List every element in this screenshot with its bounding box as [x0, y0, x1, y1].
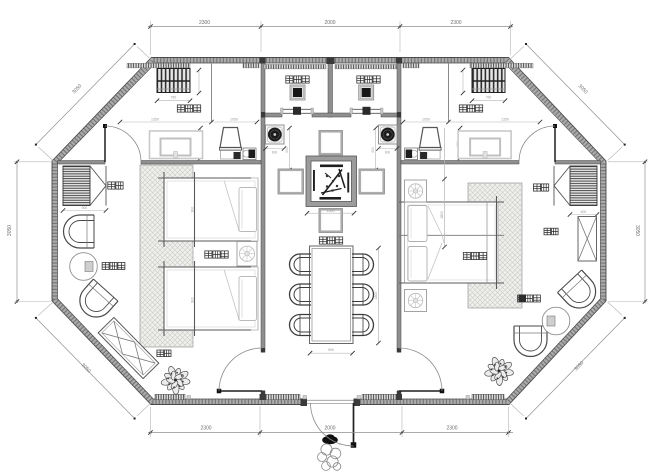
svg-text:600: 600	[385, 151, 391, 155]
svg-text:1350: 1350	[501, 117, 509, 121]
svg-text:1050: 1050	[422, 117, 430, 121]
svg-text:600: 600	[272, 151, 278, 155]
svg-text:900: 900	[190, 297, 194, 303]
svg-text:2300: 2300	[450, 20, 461, 26]
svg-text:2300: 2300	[199, 20, 210, 26]
svg-text:750: 750	[486, 96, 492, 100]
svg-text:1350: 1350	[151, 117, 159, 121]
svg-text:600: 600	[581, 210, 587, 214]
svg-text:3050: 3050	[7, 225, 13, 236]
svg-text:600: 600	[371, 147, 375, 153]
svg-text:900: 900	[328, 348, 334, 352]
svg-text:1050: 1050	[230, 117, 238, 121]
svg-text:2000: 2000	[324, 426, 335, 432]
svg-text:900: 900	[82, 206, 88, 210]
svg-text:1800: 1800	[374, 292, 378, 300]
svg-text:2000: 2000	[324, 20, 335, 26]
svg-text:900: 900	[190, 207, 194, 213]
svg-text:2300: 2300	[200, 426, 211, 432]
svg-text:1800: 1800	[440, 211, 444, 219]
svg-text:2300: 2300	[446, 426, 457, 432]
svg-text:1500: 1500	[327, 209, 335, 213]
svg-text:750: 750	[171, 96, 177, 100]
svg-text:3050: 3050	[634, 225, 640, 236]
svg-text:600: 600	[285, 147, 289, 153]
